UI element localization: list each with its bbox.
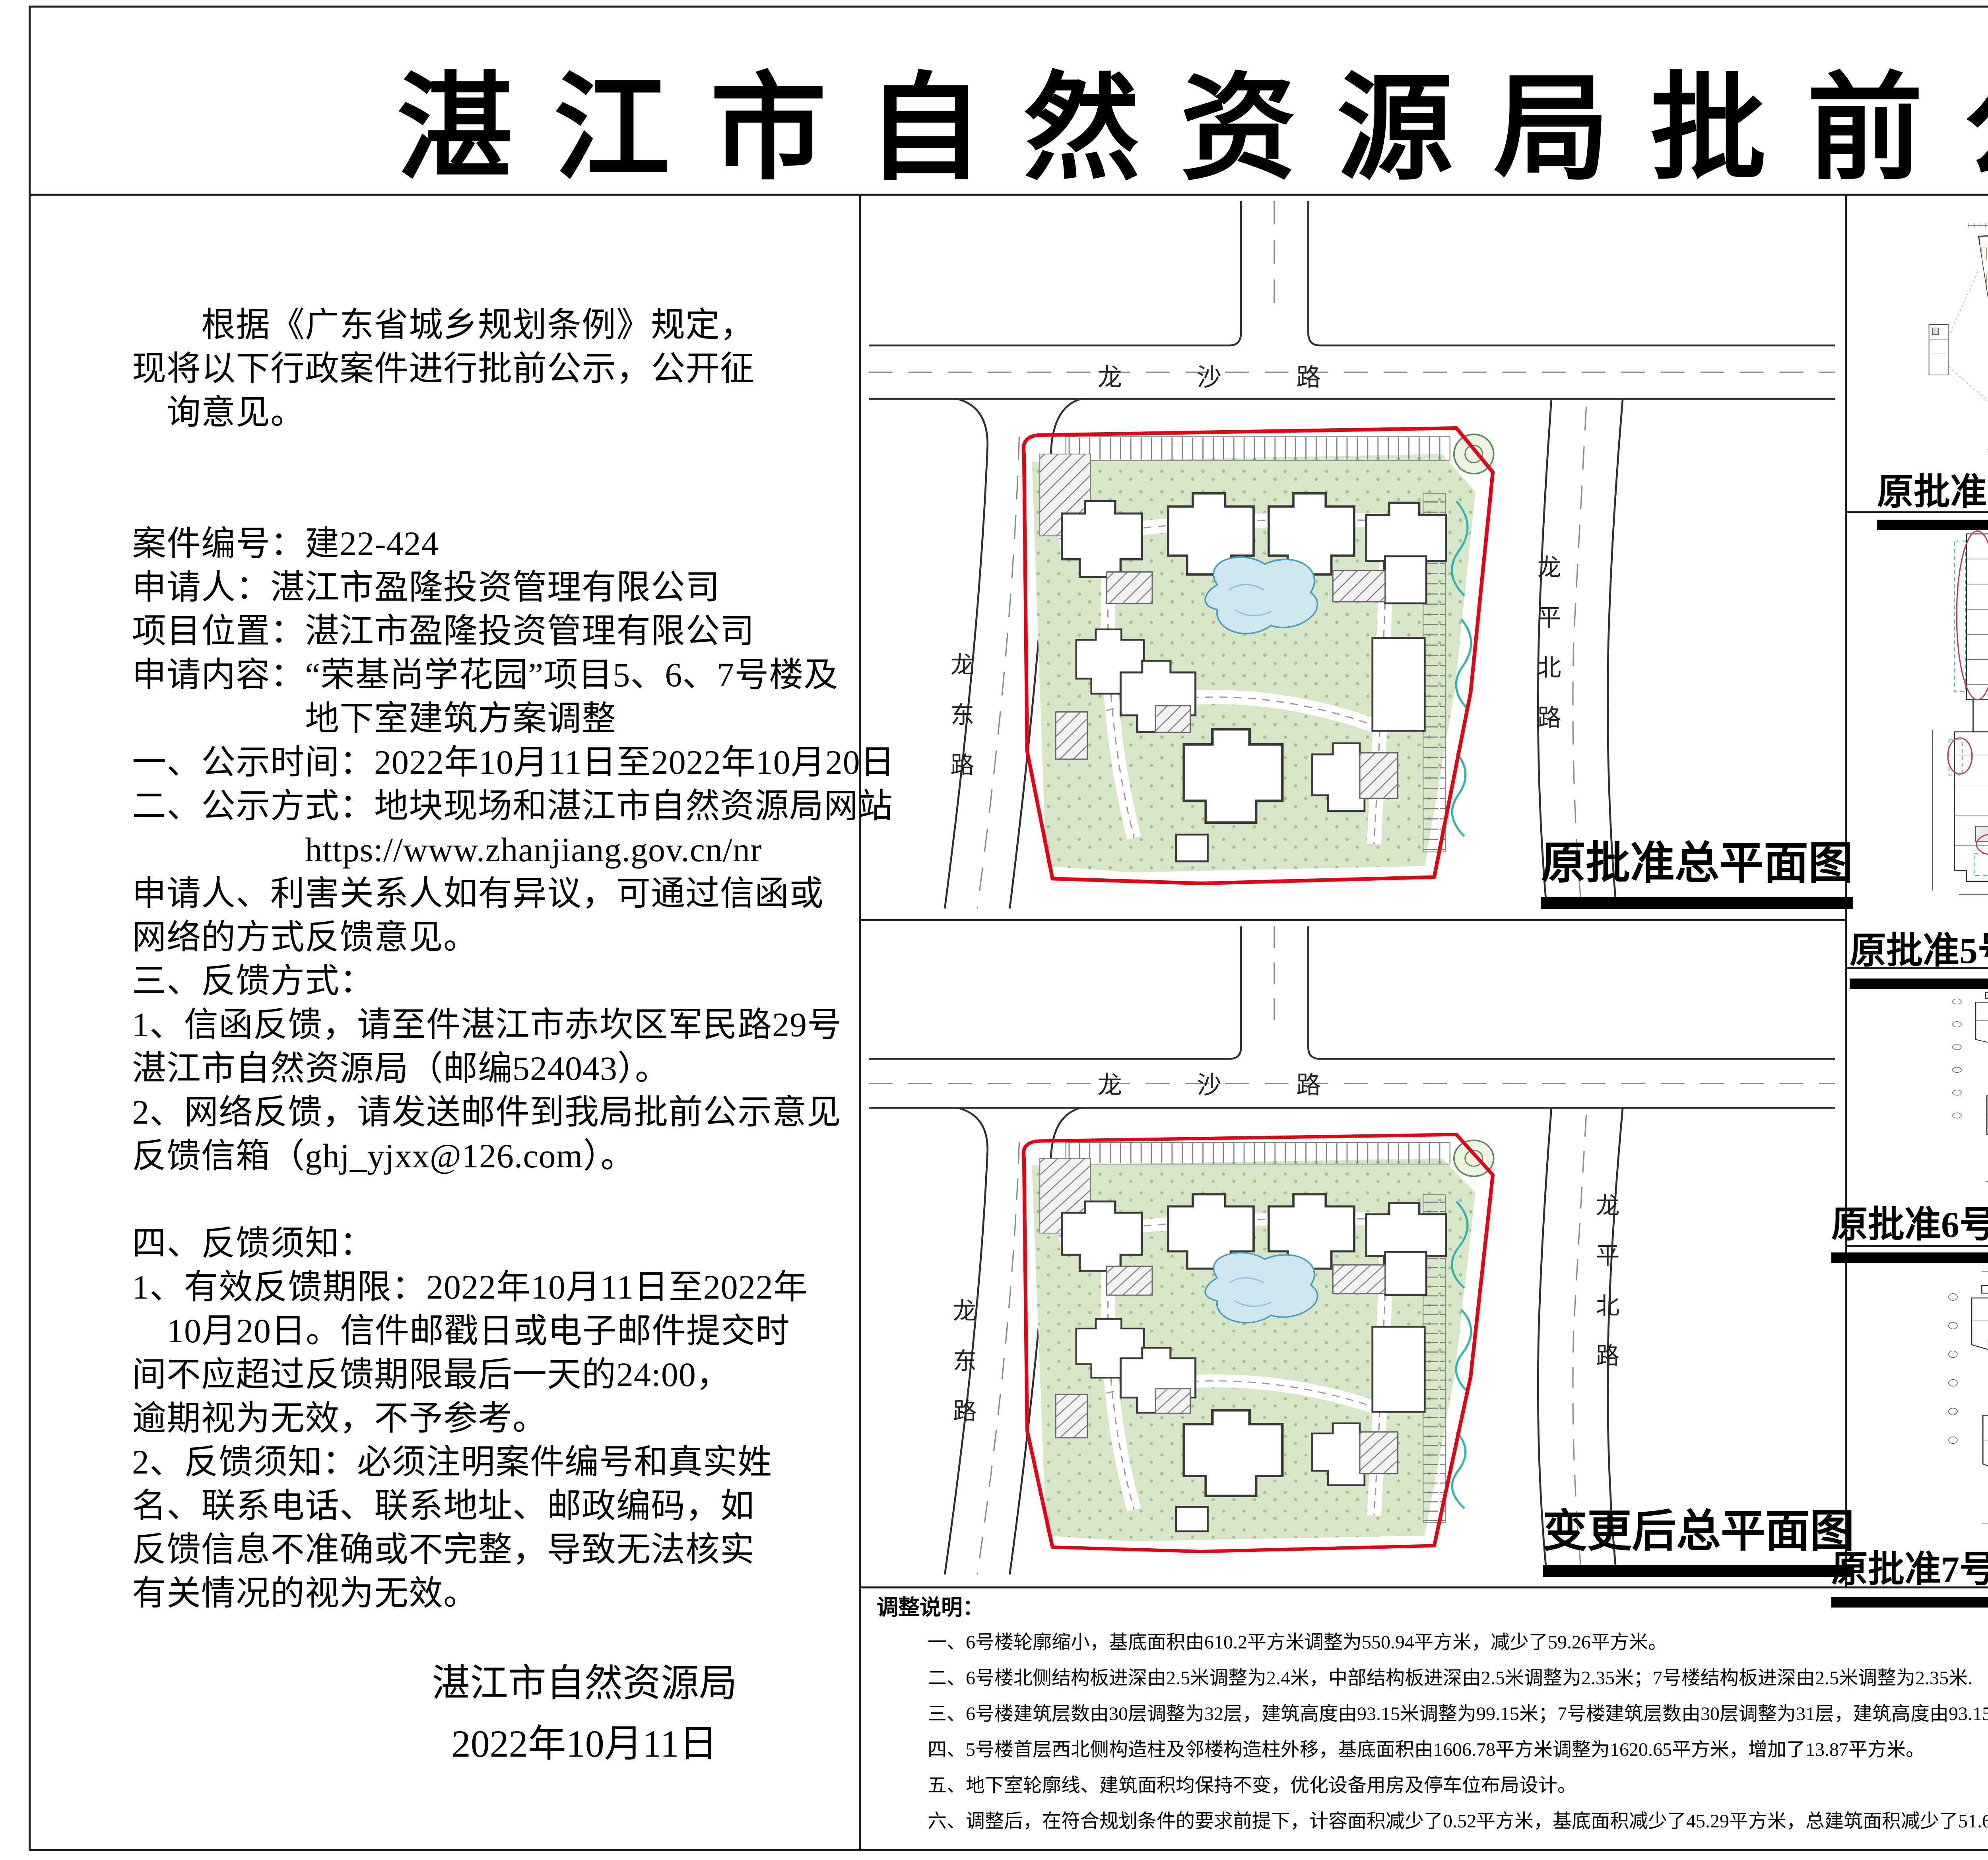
note-item: 五、地下室轮廓线、建筑面积均保持不变，优化设备用房及停车位布局设计。: [877, 1768, 1988, 1804]
notice-text-line: 申请人、利害关系人如有异议，可通过信函或: [132, 872, 857, 915]
caption-original-site-plan: 原批准总平面图: [1541, 827, 1853, 909]
road-label-longsha-road-top: 龙沙路: [1097, 357, 1396, 393]
notice-text-line: 项目位置：湛江市盈隆投资管理有限公司: [132, 609, 857, 653]
notice-text-line: 2、网络反馈，请发送邮件到我局批前公示意见: [132, 1090, 857, 1134]
note-item: 六、调整后，在符合规划条件的要求前提下，计容面积减少了0.52平方米，基底面积减…: [877, 1804, 1988, 1839]
original-basement-plan-drawing: [1926, 219, 1988, 455]
notice-text-line: 间不应超过反馈期限最后一天的24:00，: [132, 1353, 857, 1396]
road-label-longping-north-road-bottom: 龙平北路: [1588, 1193, 1623, 1393]
notice-text-line: 1、信函反馈，请至件湛江市赤坎区军民路29号: [132, 1003, 857, 1046]
notice-text-line: 三、反馈方式：: [132, 959, 857, 1003]
notice-body-text: 根据《广东省城乡规划条例》规定，现将以下行政案件进行批前公示，公开征 询意见。案…: [132, 303, 857, 1615]
notice-text-line: 四、反馈须知：: [132, 1221, 857, 1265]
notice-text-line: [132, 434, 857, 478]
notice-text-line: https://www.zhanjiang.gov.cn/nr: [132, 828, 857, 872]
notice-text-line: 湛江市自然资源局（邮编524043）。: [132, 1046, 857, 1090]
notice-text-line: 10月20日。信件邮戳日或电子邮件提交时: [132, 1309, 857, 1353]
signature-block: 湛江市自然资源局 2022年10月11日: [342, 1653, 827, 1774]
notice-text-line: 根据《广东省城乡规划条例》规定，: [132, 303, 857, 347]
notice-text-line: 地下室建筑方案调整: [132, 697, 857, 740]
caption-original-bldg7-plan: 原批准7号楼标准层平面图: [1831, 1540, 1988, 1608]
notice-text-line: 现将以下行政案件进行批前公示，公开征: [132, 347, 857, 390]
road-label-longdong-road-bottom: 龙东路: [945, 1298, 980, 1448]
note-item: 四、5号楼首层西北侧构造柱及邻楼构造柱外移，基底面积由1606.78平方米调整为…: [877, 1732, 1988, 1768]
note-item: 二、6号楼北侧结构板进深由2.5米调整为2.4米，中部结构板进深由2.5米调整为…: [877, 1660, 1988, 1696]
notice-text-line: 案件编号：建22-424: [132, 522, 857, 565]
notice-text-line: 反馈信息不准确或不完整，导致无法核实: [132, 1528, 857, 1571]
notice-text-line: 逾期视为无效，不予参考。: [132, 1396, 857, 1440]
notes-list: 一、6号楼轮廓缩小，基底面积由610.2平方米调整为550.94平方米，减少了5…: [877, 1625, 1988, 1839]
notice-text-line: 询意见。: [132, 390, 857, 434]
caption-original-bldg6-plan: 原批准6号楼标准层平面图: [1831, 1195, 1988, 1263]
road-label-longping-north-road-top: 龙平北路: [1530, 555, 1565, 755]
notice-text-line: 申请内容：“荣基尚学花园”项目5、6、7号楼及: [132, 653, 857, 697]
notice-text-line: 2、反馈须知：必须注明案件编号和真实姓: [132, 1440, 857, 1484]
notice-sheet: 湛江市自然资源局批前公示 根据《广东省城乡规划条例》规定，现将以下行政案件进行批…: [0, 0, 1988, 1860]
notice-text-line: 反馈信箱（ghj_yjxx@126.com）。: [132, 1134, 857, 1178]
notice-text-line: 1、有效反馈期限：2022年10月11日至2022年: [132, 1265, 857, 1309]
caption-changed-site-plan: 变更后总平面图: [1543, 1495, 1854, 1577]
notice-text-line: 一、公示时间：2022年10月11日至2022年10月20日: [132, 740, 857, 784]
road-label-longdong-road-top: 龙东路: [943, 652, 978, 802]
signature-date: 2022年10月11日: [342, 1714, 827, 1774]
changed-site-plan-drawing: [869, 926, 1835, 1575]
notes-heading: 调整说明：: [877, 1590, 984, 1621]
notice-text-line: 有关情况的视为无效。: [132, 1571, 857, 1615]
notice-text-line: 二、公示方式：地块现场和湛江市自然资源局网站: [132, 784, 857, 828]
notice-text-line: 申请人：湛江市盈隆投资管理有限公司: [132, 565, 857, 609]
siteplan-divider-line: [859, 919, 1847, 921]
page-title: 湛江市自然资源局批前公示: [0, 34, 1988, 202]
left-column-divider-line: [859, 194, 861, 1849]
original-bldg7-plan-drawing: [1944, 1264, 1988, 1531]
notice-text-line: [132, 478, 857, 522]
notes-top-divider-line: [859, 1586, 1988, 1588]
notice-text-line: 网络的方式反馈意见。: [132, 915, 857, 959]
note-item: 三、6号楼建筑层数由30层调整为32层，建筑高度由93.15米调整为99.15米…: [877, 1696, 1988, 1732]
original-bldg6-plan-drawing: [1948, 975, 1988, 1188]
road-label-longsha-road-bottom: 龙沙路: [1097, 1065, 1396, 1101]
notice-text-line: [132, 1178, 857, 1221]
notice-text-line: 名、联系电话、联系地址、邮政编码，如: [132, 1484, 857, 1528]
original-site-plan-drawing: [869, 201, 1835, 909]
signature-agency: 湛江市自然资源局: [342, 1653, 827, 1714]
note-item: 一、6号楼轮廓缩小，基底面积由610.2平方米调整为550.94平方米，减少了5…: [877, 1625, 1988, 1660]
original-bldg5-plan-drawing: [1920, 519, 1988, 901]
